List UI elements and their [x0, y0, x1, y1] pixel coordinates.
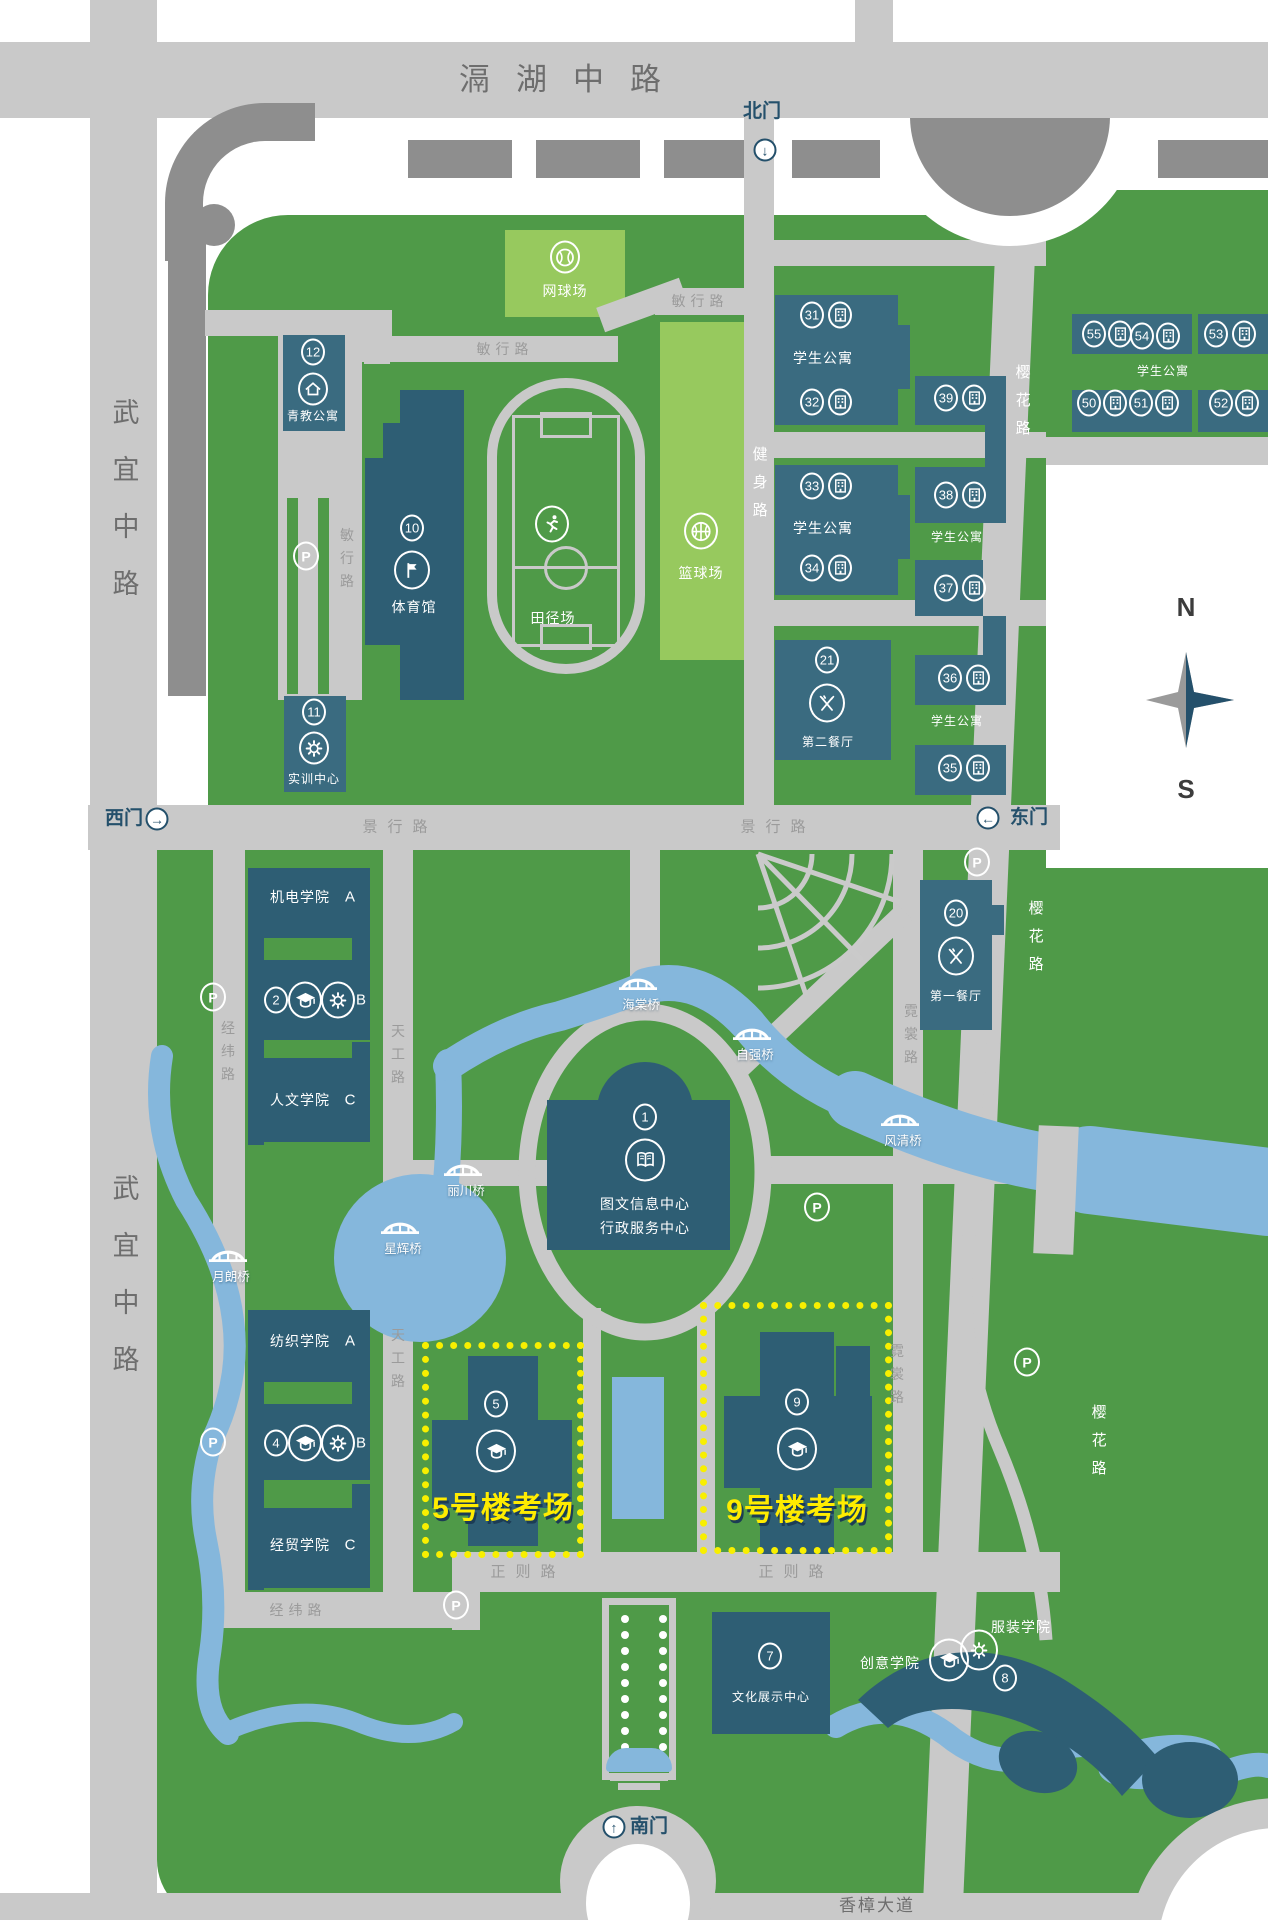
apartment-building-icon	[1108, 321, 1132, 348]
badge-34: 34	[800, 555, 824, 582]
parking-icon: P	[964, 848, 990, 877]
badge-33: 33	[800, 473, 824, 500]
label-武宜中路: 武宜中路	[107, 1174, 138, 1402]
bridge-icon	[881, 1109, 919, 1131]
badge-38: 38	[934, 482, 958, 509]
label-体育馆: 体育馆	[392, 599, 437, 615]
gear-icon	[321, 982, 355, 1019]
tennis-icon	[550, 241, 580, 274]
campus-map: 1210113132333421393837363555545350515220…	[0, 0, 1268, 1920]
bridge-label: 海棠桥	[622, 998, 660, 1012]
runner-icon	[535, 506, 569, 543]
badge-51: 51	[1129, 390, 1153, 417]
badge-12: 12	[301, 339, 325, 366]
label-B: B	[356, 1434, 366, 1451]
label-学生公寓: 学生公寓	[793, 520, 853, 536]
apartment-building-icon	[962, 385, 986, 412]
restaurant-icon	[938, 937, 974, 976]
badge-11: 11	[302, 699, 326, 726]
label-A: A	[345, 888, 355, 905]
label-篮球场: 篮球场	[679, 565, 724, 581]
badge-21: 21	[815, 647, 839, 674]
gate-arrow-icon: ↓	[754, 139, 777, 162]
badge-4: 4	[264, 1430, 288, 1457]
label-A: A	[345, 1332, 355, 1349]
gate-label-西门: 西门	[105, 808, 143, 830]
label-青教公寓: 青教公寓	[287, 410, 339, 424]
label-C: C	[345, 1536, 356, 1553]
badge-54: 54	[1130, 323, 1154, 350]
bridge-label: 月朗桥	[212, 1270, 250, 1284]
graduation-cap-icon	[288, 982, 322, 1019]
bridge-label: 自强桥	[736, 1048, 774, 1062]
label-S: S	[1177, 775, 1194, 805]
badge-7: 7	[758, 1643, 782, 1670]
parking-icon: P	[293, 542, 319, 571]
gear-icon	[321, 1425, 355, 1462]
badge-37: 37	[934, 575, 958, 602]
gear-icon	[299, 732, 329, 765]
badge-53: 53	[1204, 321, 1228, 348]
badge-31: 31	[800, 302, 824, 329]
badge-35: 35	[938, 755, 962, 782]
label-经纬路: 经纬路	[270, 1602, 327, 1618]
bridge-icon	[444, 1159, 482, 1181]
label-樱花路: 樱花路	[1026, 900, 1043, 984]
label-樱花路: 樱花路	[1089, 1404, 1106, 1488]
apartment-building-icon	[966, 665, 990, 692]
label-图文信息中心: 图文信息中心	[600, 1196, 690, 1212]
label-机电学院: 机电学院	[270, 889, 330, 905]
gear-icon	[960, 1630, 998, 1671]
label-健身路: 健身路	[750, 446, 767, 530]
apartment-building-icon	[828, 389, 852, 416]
label-敏行路: 敏行路	[672, 293, 729, 309]
badge-5: 5	[484, 1391, 508, 1418]
label-敏行路: 敏行路	[339, 528, 355, 597]
apartment-building-icon	[962, 482, 986, 509]
label-霓裳路: 霓裳路	[903, 1004, 919, 1073]
open-book-icon	[625, 1139, 665, 1182]
label-滆湖中路: 滆湖中路	[459, 62, 687, 98]
badge-36: 36	[938, 665, 962, 692]
label-N: N	[1177, 593, 1196, 623]
basketball-icon	[684, 513, 718, 550]
badge-2: 2	[264, 987, 288, 1014]
graduation-cap-icon	[476, 1430, 516, 1473]
parking-icon: P	[804, 1193, 830, 1222]
parking-icon: P	[200, 1428, 226, 1457]
apartment-building-icon	[966, 755, 990, 782]
bridge-icon	[619, 973, 657, 995]
label-行政服务中心: 行政服务中心	[600, 1220, 690, 1236]
apartment-building-icon	[828, 473, 852, 500]
badge-52: 52	[1209, 390, 1233, 417]
graduation-cap-icon	[777, 1428, 817, 1471]
badge-10: 10	[400, 515, 424, 542]
bridge-icon	[381, 1217, 419, 1239]
parking-icon: P	[443, 1591, 469, 1620]
apartment-building-icon	[1103, 390, 1127, 417]
apartment-building-icon	[828, 302, 852, 329]
restaurant-icon	[809, 684, 845, 723]
label-香樟大道: 香樟大道	[839, 1896, 915, 1916]
parking-icon: P	[200, 983, 226, 1012]
label-霓裳路: 霓裳路	[889, 1344, 905, 1413]
apartment-building-icon	[1156, 323, 1180, 350]
badge-32: 32	[800, 389, 824, 416]
badge-39: 39	[934, 385, 958, 412]
label-樱花路: 樱花路	[1013, 364, 1030, 448]
gate-arrow-icon: ←	[977, 807, 1000, 830]
marker-layer: 1210113132333421393837363555545350515220…	[0, 0, 1268, 1920]
apartment-building-icon	[828, 555, 852, 582]
bridge-label: 星辉桥	[384, 1242, 422, 1256]
label-田径场: 田径场	[531, 610, 576, 626]
bridge-label: 丽川桥	[447, 1184, 485, 1198]
label-9号楼考场: 9号楼考场	[726, 1494, 868, 1529]
label-敏行路: 敏行路	[477, 341, 534, 357]
bridge-label: 风清桥	[884, 1134, 922, 1148]
label-纺织学院: 纺织学院	[270, 1333, 330, 1349]
label-第二餐厅: 第二餐厅	[802, 736, 854, 750]
badge-50: 50	[1077, 390, 1101, 417]
label-学生公寓: 学生公寓	[793, 350, 853, 366]
label-天工路: 天工路	[390, 1024, 406, 1093]
label-网球场: 网球场	[543, 283, 588, 299]
apartment-building-icon	[1155, 390, 1179, 417]
label-第一餐厅: 第一餐厅	[930, 990, 982, 1004]
label-B: B	[356, 991, 366, 1008]
badge-8: 8	[993, 1665, 1017, 1692]
label-正则路: 正则路	[758, 1563, 833, 1580]
badge-9: 9	[785, 1389, 809, 1416]
label-学生公寓: 学生公寓	[931, 715, 983, 729]
label-实训中心: 实训中心	[288, 773, 340, 787]
apartment-building-icon	[1232, 321, 1256, 348]
label-人文学院: 人文学院	[270, 1092, 330, 1108]
label-创意学院: 创意学院	[860, 1655, 920, 1671]
label-景行路: 景行路	[362, 818, 437, 835]
label-文化展示中心: 文化展示中心	[732, 1691, 810, 1705]
label-学生公寓: 学生公寓	[1137, 365, 1189, 379]
parking-icon: P	[1014, 1348, 1040, 1377]
label-景行路: 景行路	[740, 818, 815, 835]
label-经贸学院: 经贸学院	[270, 1537, 330, 1553]
label-正则路: 正则路	[490, 1563, 565, 1580]
home-icon	[298, 373, 328, 406]
badge-20: 20	[944, 900, 968, 927]
gate-arrow-icon: →	[146, 808, 169, 831]
label-武宜中路: 武宜中路	[107, 398, 138, 626]
gym-flag-icon	[394, 551, 430, 590]
label-学生公寓: 学生公寓	[931, 531, 983, 545]
label-天工路: 天工路	[390, 1328, 406, 1397]
label-经纬路: 经纬路	[220, 1021, 236, 1090]
bridge-icon	[733, 1023, 771, 1045]
gate-label-东门: 东门	[1010, 807, 1048, 829]
apartment-building-icon	[962, 575, 986, 602]
badge-1: 1	[633, 1104, 657, 1131]
bridge-icon	[209, 1245, 247, 1267]
gate-label-北门: 北门	[743, 101, 781, 123]
gate-label-南门: 南门	[630, 1816, 668, 1838]
label-C: C	[345, 1091, 356, 1108]
label-服装学院: 服装学院	[991, 1619, 1051, 1635]
apartment-building-icon	[1235, 390, 1259, 417]
graduation-cap-icon	[288, 1425, 322, 1462]
badge-55: 55	[1082, 321, 1106, 348]
gate-arrow-icon: ↑	[603, 1816, 626, 1839]
label-5号楼考场: 5号楼考场	[432, 1492, 574, 1527]
